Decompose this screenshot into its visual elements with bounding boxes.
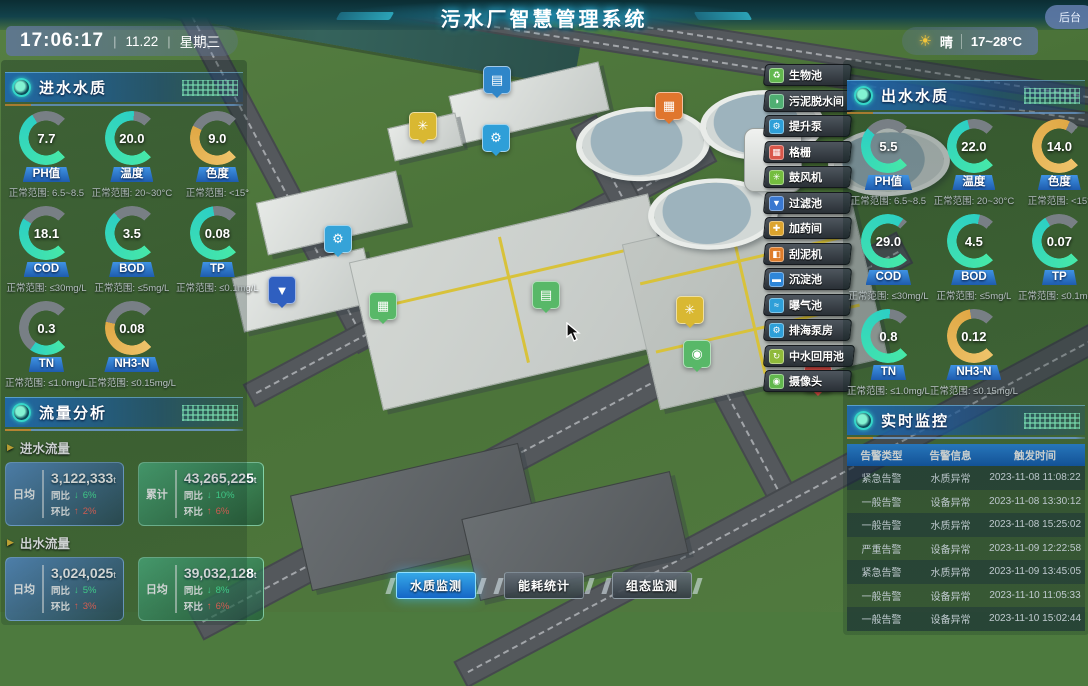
- marker-pointer: [692, 367, 702, 377]
- facility-button-list: ♻生物池◑污泥脱水间⚙提升泵▦格栅✳鼓风机▼过滤池✚加药间◧刮泥机▬沉淀池≈曝气…: [764, 64, 854, 392]
- facility-button-inner: ♻生物池: [769, 67, 822, 83]
- bottom-tab-能耗统计[interactable]: 能耗统计: [504, 572, 584, 599]
- clarifier-tank: [572, 103, 714, 185]
- gauge-ring: 7.7: [19, 111, 73, 165]
- gauge-label: COD: [866, 270, 912, 285]
- bottom-tab-水质监测[interactable]: 水质监测: [396, 572, 476, 599]
- facility-button-inner: ✚加药间: [769, 220, 822, 236]
- facility-button-inner: ▼过滤池: [769, 195, 822, 211]
- marker-pointer: [685, 323, 695, 333]
- weather-label: 晴: [940, 32, 953, 51]
- sedimentation-tank-marker[interactable]: ▤: [483, 66, 511, 94]
- gauge-label: 色度: [196, 167, 239, 182]
- facility-button-排海泵房[interactable]: ⚙排海泵房: [763, 319, 852, 341]
- right-panel: 出水水质 5.5PH值正常范围: 6.5~8.522.0温度正常范围: 20~3…: [847, 64, 1085, 631]
- facility-button-label: 刮泥机: [789, 246, 822, 262]
- outlet-quality-header: 出水水质: [847, 80, 1085, 110]
- dots-decoration: [182, 80, 238, 96]
- bottom-tab-bar: 水质监测能耗统计组态监测: [396, 572, 692, 599]
- gauge-ring: 29.0: [861, 214, 915, 268]
- facility-button-inner: ◉摄像头: [769, 373, 822, 389]
- grille-icon: ▦: [769, 144, 784, 159]
- flow-card-unit: t: [254, 475, 257, 485]
- facility-button-label: 摄像头: [789, 373, 822, 389]
- facility-button-inner: ⚙排海泵房: [769, 322, 833, 338]
- datetime-widget: 17:06:17 | 11.22 | 星期三: [6, 26, 238, 56]
- facility-button-提升泵[interactable]: ⚙提升泵: [763, 115, 852, 137]
- left-panel: 进水水质 7.7PH值正常范围: 6.5~8.520.0温度正常范围: 20~3…: [5, 64, 243, 621]
- gauge-value: 0.08: [190, 206, 244, 260]
- gauge-ring: 0.3: [19, 301, 73, 355]
- gauge-label: PH值: [865, 175, 912, 190]
- outlet-quality-title: 出水水质: [881, 85, 949, 106]
- blower-icon: ✳: [769, 170, 784, 185]
- facility-button-inner: ⚙提升泵: [769, 118, 822, 134]
- facility-button-label: 曝气池: [789, 297, 822, 313]
- gauge-ring: 14.0: [1032, 119, 1086, 173]
- gauge-ring: 18.1: [19, 206, 73, 260]
- blower-marker-2[interactable]: ✳: [676, 296, 704, 324]
- facility-button-label: 加药间: [789, 220, 822, 236]
- bio-tank-marker-2[interactable]: ▤: [532, 281, 560, 309]
- inlet-quality-title: 进水水质: [39, 77, 107, 98]
- gauge-value: 7.7: [19, 111, 73, 165]
- facility-button-label: 污泥脱水间: [789, 93, 844, 109]
- filter-tank-marker[interactable]: ▼: [268, 276, 296, 304]
- bio-tank-marker[interactable]: ▦: [369, 292, 397, 320]
- gauge-label: TP: [200, 262, 235, 277]
- dosing-room-icon: ✚: [769, 221, 784, 236]
- gauge-value: 0.08: [105, 301, 159, 355]
- gauge-ring: 0.08: [190, 206, 244, 260]
- facility-button-inner: ▦格栅: [769, 144, 811, 160]
- weekday: 星期三: [180, 31, 221, 51]
- gauge-value: 0.12: [947, 309, 1001, 363]
- sea-pump-house-icon: ⚙: [769, 323, 784, 338]
- flow-analysis-header: 流量分析: [5, 397, 243, 427]
- marker-pointer: [492, 93, 502, 103]
- facility-button-过滤池[interactable]: ▼过滤池: [763, 192, 852, 214]
- gauge-value: 0.3: [19, 301, 73, 355]
- page-title: 污水厂智慧管理系统: [441, 3, 648, 32]
- water-reuse-pool-icon: ↻: [769, 348, 784, 363]
- marker-pointer: [541, 308, 551, 318]
- gauge-label: 色度: [1038, 175, 1081, 190]
- sun-icon: ☀: [918, 32, 931, 50]
- dots-decoration: [1024, 88, 1080, 104]
- gauge-ring: 0.07: [1032, 214, 1086, 268]
- gauge-value: 20.0: [105, 111, 159, 165]
- facility-button-inner: ▬沉淀池: [769, 271, 822, 287]
- panel-dot-icon: [12, 78, 31, 97]
- header-wing-right: [694, 12, 753, 20]
- filter-pool-icon: ▼: [769, 195, 784, 210]
- lift-pump-marker[interactable]: ⚙: [482, 124, 510, 152]
- facility-button-生物池[interactable]: ♻生物池: [763, 64, 852, 86]
- gauge-label: 温度: [952, 175, 995, 190]
- gauge-label: TN: [29, 357, 64, 372]
- gauge-ring: 3.5: [105, 206, 159, 260]
- gauge-label: TN: [871, 365, 906, 380]
- gauge-ring: 0.12: [947, 309, 1001, 363]
- gauge-value: 14.0: [1032, 119, 1086, 173]
- facility-button-中水回用池[interactable]: ↻中水回用池: [763, 345, 855, 367]
- gauge-label: BOD: [109, 262, 155, 277]
- scraper-marker[interactable]: ▦: [655, 92, 683, 120]
- panel-dot-icon: [12, 403, 31, 422]
- gauge-label: NH3-N: [104, 357, 159, 372]
- facility-button-label: 排海泵房: [789, 322, 833, 338]
- weather-widget: ☀ 晴 17~28°C: [902, 27, 1038, 55]
- flow-analysis-title: 流量分析: [39, 402, 107, 423]
- aeration-pool-icon: ≈: [769, 297, 784, 312]
- facility-button-摄像头[interactable]: ◉摄像头: [763, 370, 852, 392]
- clock-time: 17:06:17: [20, 30, 104, 52]
- sludge-dewatering-icon: ◑: [769, 93, 784, 108]
- mouse-cursor: [566, 322, 582, 347]
- facility-button-label: 格栅: [789, 144, 811, 160]
- gauge-value: 0.07: [1032, 214, 1086, 268]
- realtime-monitor-header: 实时监控: [847, 405, 1085, 435]
- gauge-label: COD: [24, 262, 70, 277]
- facility-button-inner: ↻中水回用池: [769, 348, 844, 364]
- pump-marker[interactable]: ⚙: [324, 225, 352, 253]
- panel-dot-icon: [854, 411, 873, 430]
- facility-button-inner: ◑污泥脱水间: [769, 93, 844, 109]
- bottom-tab-组态监测[interactable]: 组态监测: [612, 572, 692, 599]
- gauge-label: TP: [1042, 270, 1077, 285]
- camera-marker[interactable]: ◉: [683, 340, 711, 368]
- marker-pointer: [378, 319, 388, 329]
- lift-pump-icon: ⚙: [769, 119, 784, 134]
- gauge-ring: 9.0: [190, 111, 244, 165]
- gauge-label: 温度: [110, 167, 153, 182]
- facility-button-刮泥机[interactable]: ◧刮泥机: [763, 243, 852, 265]
- marker-pointer: [813, 391, 823, 401]
- gauge-ring: 22.0: [947, 119, 1001, 173]
- facility-button-label: 中水回用池: [789, 348, 844, 364]
- marker-pointer: [664, 119, 674, 129]
- facility-button-inner: ≈曝气池: [769, 297, 822, 313]
- flow-card-unit: t: [254, 570, 257, 580]
- realtime-monitor-title: 实时监控: [881, 410, 949, 431]
- gauge-value: 4.5: [947, 214, 1001, 268]
- gauge-label: BOD: [951, 270, 997, 285]
- facility-button-label: 提升泵: [789, 118, 822, 134]
- gauge-ring: 5.5: [861, 119, 915, 173]
- dots-decoration: [1024, 413, 1080, 429]
- mud-scraper-icon: ◧: [769, 246, 784, 261]
- marker-pointer: [418, 139, 428, 149]
- marker-pointer: [277, 303, 287, 313]
- sedimentation-pool-icon: ▬: [769, 272, 784, 287]
- gauge-value: 3.5: [105, 206, 159, 260]
- date: 11.22: [125, 34, 158, 49]
- gauge-ring: 20.0: [105, 111, 159, 165]
- facility-button-污泥脱水间[interactable]: ◑污泥脱水间: [763, 90, 855, 112]
- facility-button-label: 生物池: [789, 67, 822, 83]
- gauge-value: 9.0: [190, 111, 244, 165]
- camera-icon: ◉: [769, 374, 784, 389]
- facility-button-label: 沉淀池: [789, 271, 822, 287]
- marker-pointer: [491, 151, 501, 161]
- marker-pointer: [333, 252, 343, 262]
- gauge-label: PH值: [23, 167, 70, 182]
- gauge-value: 22.0: [947, 119, 1001, 173]
- gauge-value: 0.8: [861, 309, 915, 363]
- facility-button-inner: ◧刮泥机: [769, 246, 822, 262]
- gauge-value: 18.1: [19, 206, 73, 260]
- gauge-ring: 0.08: [105, 301, 159, 355]
- facility-button-label: 过滤池: [789, 195, 822, 211]
- facility-button-inner: ✳鼓风机: [769, 169, 822, 185]
- facility-button-格栅[interactable]: ▦格栅: [763, 141, 852, 163]
- temperature-range: 17~28°C: [961, 34, 1022, 49]
- gauge-value: 5.5: [861, 119, 915, 173]
- inlet-quality-header: 进水水质: [5, 72, 243, 102]
- backend-button[interactable]: 后台: [1045, 5, 1088, 29]
- header-wing-left: [336, 12, 395, 20]
- blower-marker[interactable]: ✳: [409, 112, 437, 140]
- facility-button-曝气池[interactable]: ≈曝气池: [763, 294, 852, 316]
- dots-decoration: [182, 405, 238, 421]
- gauge-label: NH3-N: [946, 365, 1001, 380]
- facility-button-加药间[interactable]: ✚加药间: [763, 217, 852, 239]
- bio-pool-icon: ♻: [769, 68, 784, 83]
- facility-button-鼓风机[interactable]: ✳鼓风机: [763, 166, 852, 188]
- gauge-value: 29.0: [861, 214, 915, 268]
- panel-dot-icon: [854, 86, 873, 105]
- gauge-ring: 4.5: [947, 214, 1001, 268]
- facility-button-label: 鼓风机: [789, 169, 822, 185]
- facility-button-沉淀池[interactable]: ▬沉淀池: [763, 268, 852, 290]
- gauge-ring: 0.8: [861, 309, 915, 363]
